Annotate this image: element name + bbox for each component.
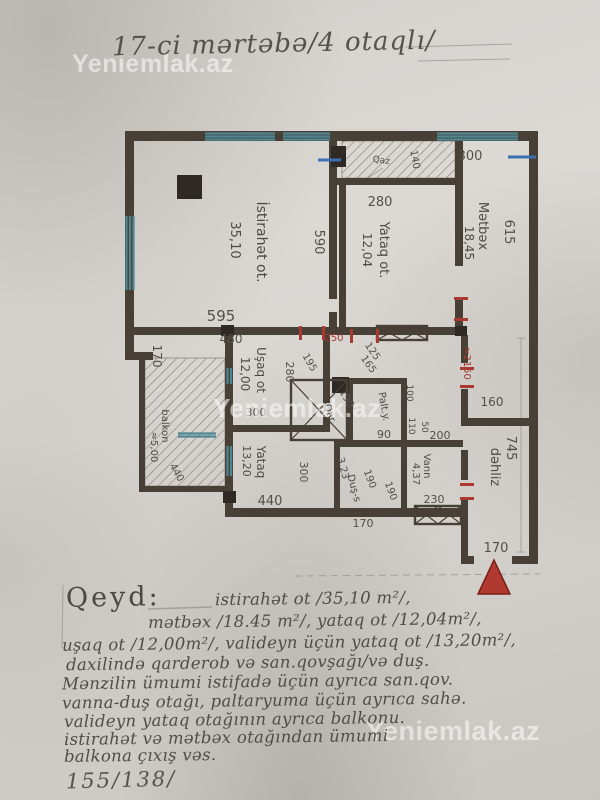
- room-label-metbex: Mətbəx: [475, 202, 490, 251]
- dim-palty-90: 90: [377, 428, 391, 441]
- dim-entrance-170: 170: [484, 541, 509, 556]
- room-label-balkon: balkon: [159, 409, 170, 442]
- room-label-paltaryuma: Palt.y.: [376, 391, 392, 422]
- dim-right-615: 615: [501, 220, 516, 245]
- note-line-1: istirahət ot /35,10 m²/,: [215, 588, 411, 609]
- dim-palty-100: 100: [404, 384, 414, 401]
- dim-door-195: 195: [300, 352, 319, 374]
- room-area-vann: 4,37: [410, 463, 421, 485]
- room-label-yataq-ot: Yataq ot.: [376, 221, 391, 279]
- dim-dus-170: 170: [353, 517, 374, 530]
- dim-yataq2-440: 440: [258, 494, 283, 509]
- entrance-triangle-icon: [478, 560, 510, 594]
- dim-hall-160: 160: [481, 395, 504, 409]
- note-label: Qeyd:: [66, 581, 161, 614]
- dim-hall-2150: ≈2150: [461, 346, 472, 380]
- dim-yataq-ot-280: 280: [368, 195, 393, 210]
- room-area-istirahat: 35,10: [227, 221, 242, 258]
- room-area-yataq2: 13,20: [240, 445, 253, 477]
- dim-istirahat-595: 595: [207, 307, 236, 325]
- room-label-dehliz: dəhliz: [487, 448, 502, 487]
- room-label-istirahat: İstirahət ot.: [253, 201, 271, 282]
- room-area-usaq: 12,00: [238, 357, 252, 391]
- area-ratio: 155/138/: [66, 767, 177, 794]
- dim-dus-190: 190: [361, 468, 378, 490]
- room-label-yataq2: Yataq: [254, 445, 268, 479]
- note-line-9: balkona çıxış vəs.: [64, 745, 217, 766]
- room-area-metbex: 18,45: [462, 226, 476, 260]
- room-label-vann: Vann: [421, 454, 432, 479]
- dim-usaq-280: 280: [283, 362, 296, 383]
- dim-door-250: 250: [324, 333, 343, 344]
- dim-top-300: 300: [458, 149, 483, 164]
- dim-mid-200: 200: [430, 429, 451, 442]
- note-line-2: mətbəx /18.45 m²/, yataq ot /12,04m²/,: [148, 609, 482, 632]
- dim-yataq2-300: 300: [297, 462, 310, 483]
- dim-hall-745: 745: [503, 436, 518, 461]
- room-area-balkon: ≈5,00: [148, 432, 159, 463]
- photo-of-floor-plan: İstirahət ot. 35,10 Yataq ot. 12,04 Mətb…: [0, 0, 600, 800]
- dim-vann-230: 230: [424, 493, 445, 506]
- dim-palty-110: 110: [406, 417, 416, 434]
- room-label-usaq: Uşaq ot: [254, 347, 268, 393]
- dim-left-170: 170: [150, 345, 164, 368]
- dim-mid-50: 50: [419, 421, 429, 433]
- room-area-yataq-ot: 12,04: [360, 233, 374, 267]
- dim-istirahat-590: 590: [311, 230, 326, 255]
- dim-usaq-480: 480: [220, 332, 243, 346]
- dim-usaq-300: 300: [246, 406, 267, 419]
- dim-vann-190: 190: [382, 480, 399, 502]
